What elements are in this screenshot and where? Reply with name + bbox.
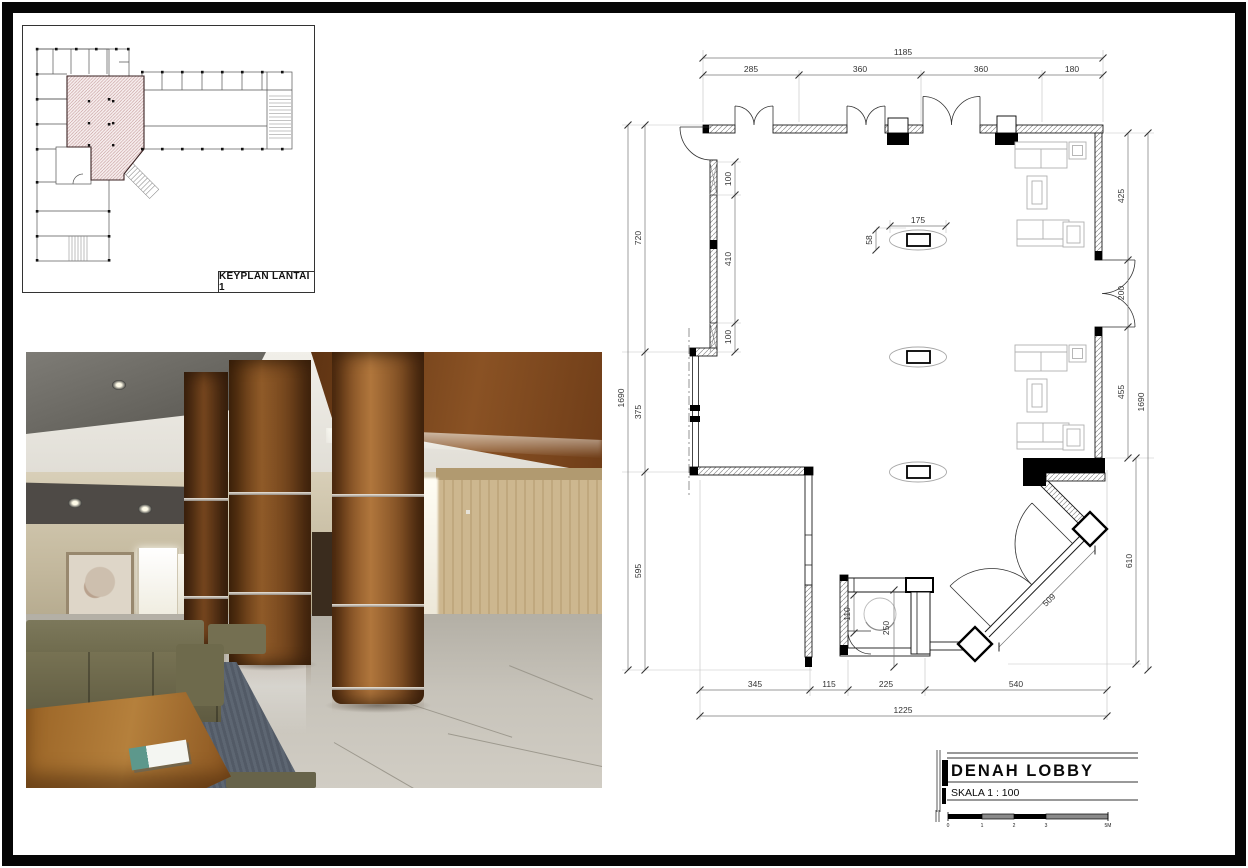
dim-top-2: 360 [853, 64, 867, 74]
render-spotlight [68, 498, 82, 508]
dim-right-lower: 610 [1124, 554, 1134, 568]
dim-right-2: 200 [1116, 286, 1126, 300]
keyplan-title: KEYPLAN LANTAI 1 [218, 271, 314, 292]
drawing-scale: SKALA 1 : 100 [951, 787, 1019, 799]
keyplan-box: KEYPLAN LANTAI 1 [22, 25, 315, 293]
dim-right-1: 425 [1116, 189, 1126, 203]
drawing-title: DENAH LOBBY [951, 762, 1094, 780]
dim-left-total: 1690 [616, 388, 626, 407]
scale-tick-1: 1 [981, 823, 984, 829]
dim-bottom-total: 1225 [894, 705, 913, 715]
render-ottoman [226, 772, 316, 788]
dim-bottom-3: 225 [879, 679, 893, 689]
dim-right-total: 1690 [1136, 392, 1146, 411]
keyplan-lobby-highlight [67, 76, 144, 180]
dim-inner-3: 100 [723, 330, 733, 344]
title-block-bar [942, 760, 948, 786]
render-display-panels [466, 510, 602, 614]
dim-right-3: 455 [1116, 385, 1126, 399]
render-spotlight [138, 504, 152, 514]
dim-column-width: 175 [911, 215, 925, 225]
render-soffit [26, 480, 196, 524]
dim-inner-1: 100 [723, 172, 733, 186]
render-wood-column [184, 372, 228, 644]
title-block-bar [942, 788, 946, 804]
seating-cluster [1015, 345, 1086, 450]
dim-inner-2: 410 [723, 252, 733, 266]
dim-bottom-4: 540 [1009, 679, 1023, 689]
dim-bottom-2: 115 [822, 679, 836, 689]
title-block-rules [936, 750, 1138, 822]
dim-left-1: 720 [633, 231, 643, 245]
scale-tick-3: 3 [1045, 823, 1048, 829]
title-block: DENAH LOBBY SKALA 1 : 100 0 1 2 3 5M [934, 748, 1148, 840]
dim-top-4: 180 [1065, 64, 1079, 74]
seating-cluster [1015, 142, 1086, 247]
render-spotlight [112, 380, 126, 390]
diagonal-wall [985, 535, 1085, 637]
round-columns [890, 230, 947, 482]
render-doorway [312, 532, 332, 616]
denah-lobby-plan: 1185 285 360 360 180 1690 720 375 595 10… [608, 30, 1168, 770]
render-wood-column [332, 352, 424, 704]
dim-column-depth: 58 [864, 235, 874, 245]
lobby-render-photo [26, 352, 602, 788]
dim-left-3: 595 [633, 564, 643, 578]
dim-top-1: 285 [744, 64, 758, 74]
render-wall-art [66, 552, 134, 622]
scale-tick-5m: 5M [1105, 823, 1112, 829]
dim-bottom-1: 345 [748, 679, 762, 689]
doors [680, 97, 1135, 655]
dim-top-total: 1185 [894, 47, 913, 57]
dim-left-2: 375 [633, 405, 643, 419]
dim-diagonal-wall: 509 [1040, 591, 1057, 608]
graphic-scale-bar [948, 812, 1108, 821]
display-panel [466, 510, 470, 514]
dim-counter-depth: 110 [842, 607, 852, 621]
diagonal-column [958, 627, 992, 661]
render-wood-column [229, 360, 311, 665]
dim-counter-width: 250 [881, 621, 891, 635]
scale-tick-2: 2 [1013, 823, 1016, 829]
dim-top-3: 360 [974, 64, 988, 74]
scale-tick-0: 0 [947, 823, 950, 829]
reception-counter [848, 578, 933, 654]
render-window [137, 548, 179, 618]
keyplan-drawing [23, 26, 314, 292]
